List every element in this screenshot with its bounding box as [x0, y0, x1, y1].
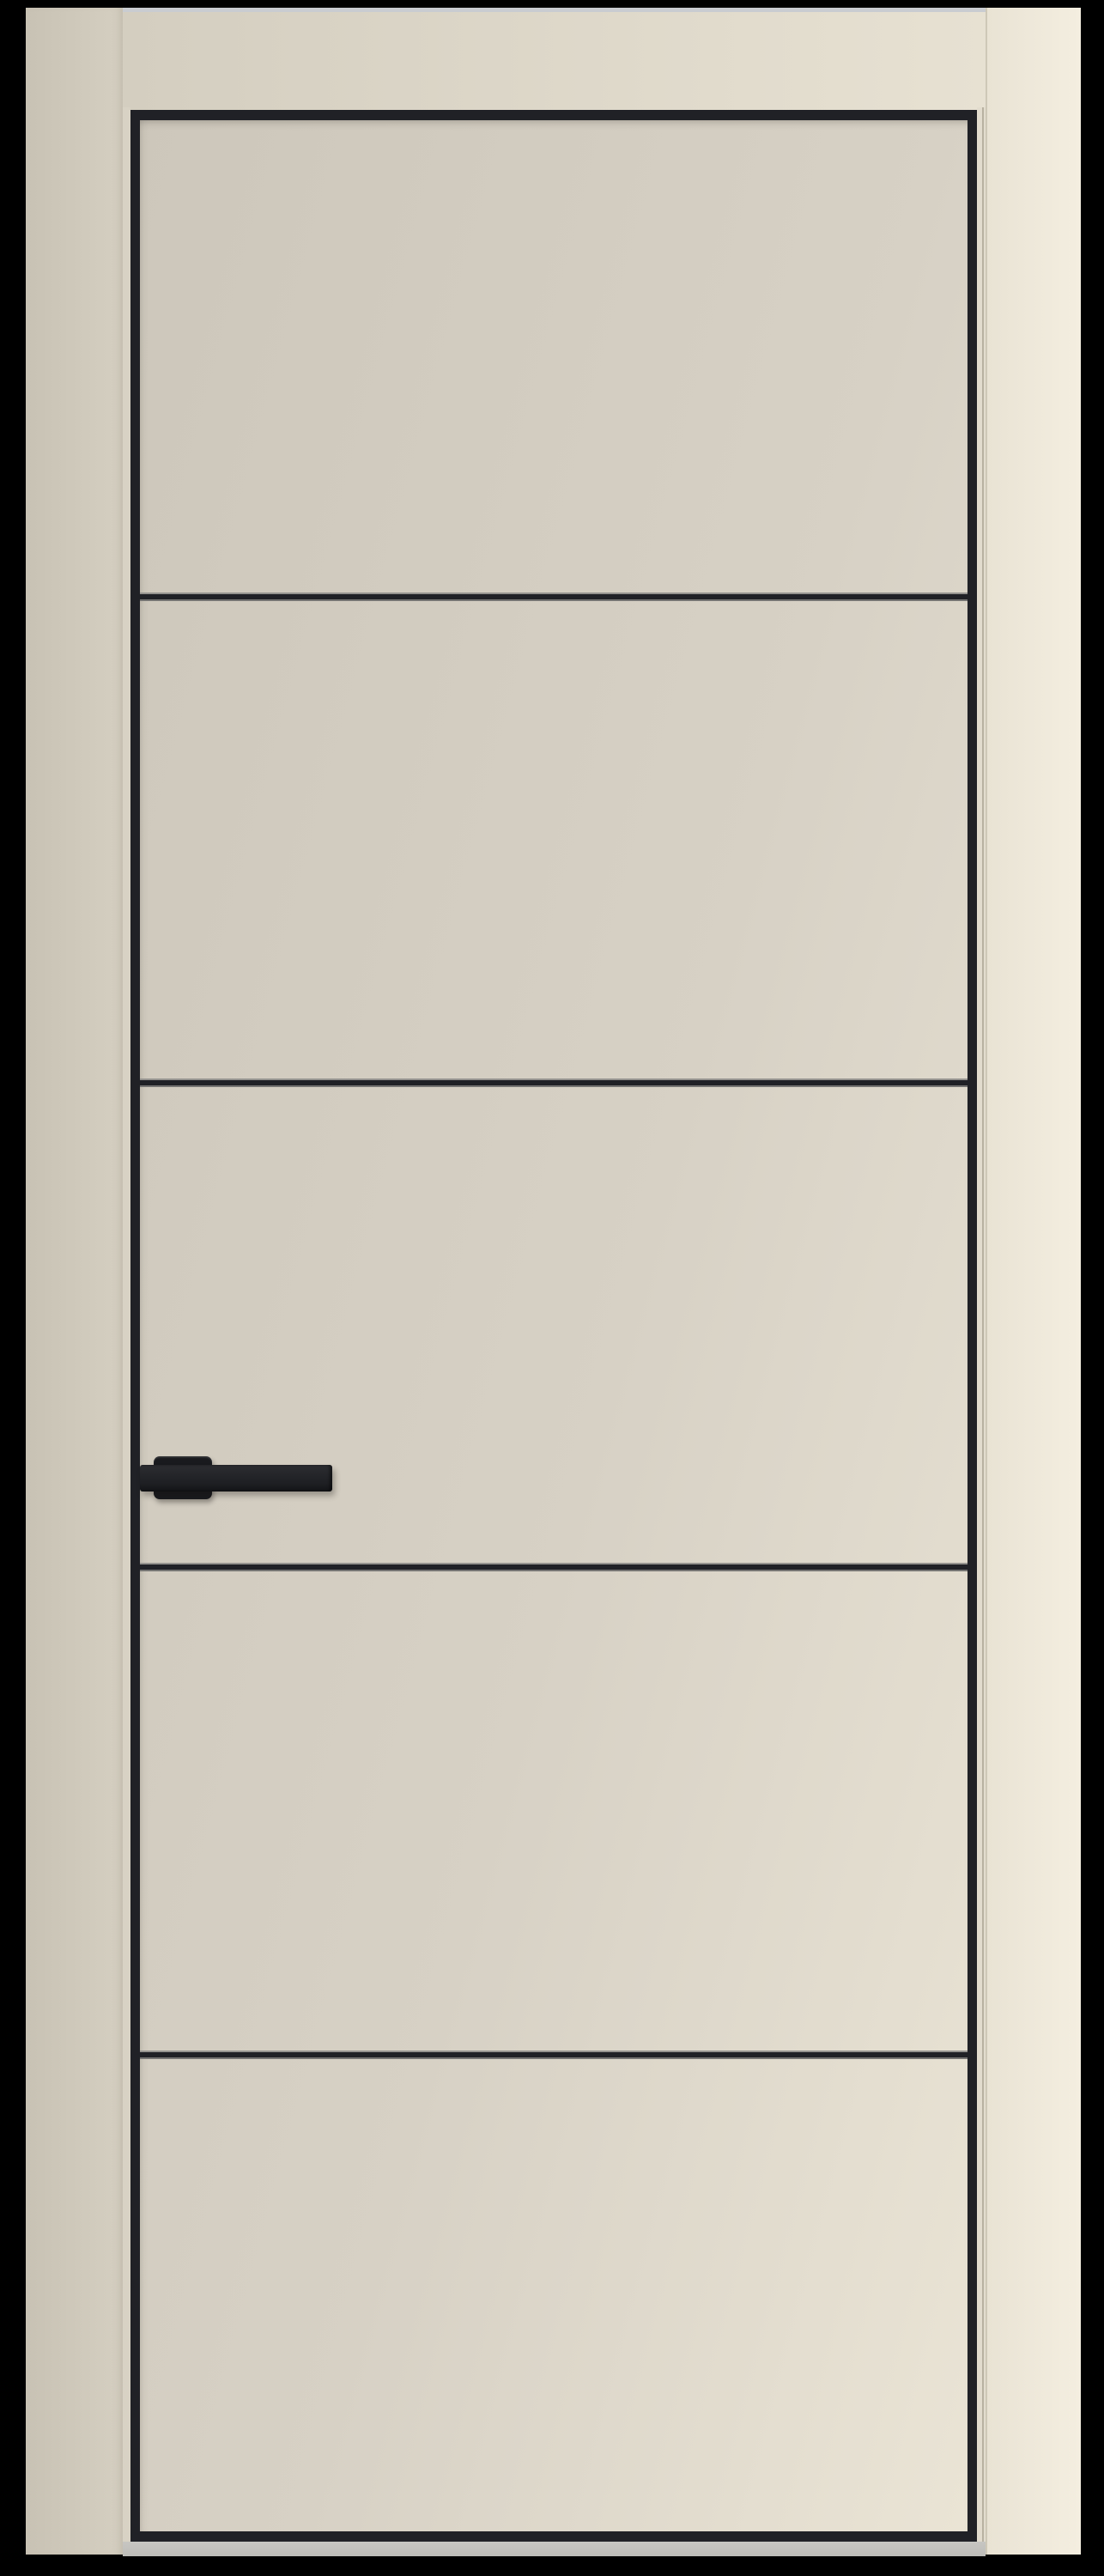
frame-inner-face-right [977, 107, 986, 2542]
panel-divider-line-1 [140, 592, 968, 601]
door-leaf [140, 120, 968, 2531]
panel-divider-line-2 [140, 1078, 968, 1087]
left-door-jamb [26, 8, 127, 2555]
panel-divider-line-4 [140, 2050, 968, 2059]
floor-strip [123, 2542, 986, 2556]
panel-divider-line-3 [140, 1563, 968, 1571]
frame-inner-face-left [123, 107, 130, 2542]
door-product-photo [0, 0, 1104, 2576]
right-door-jamb [986, 8, 1081, 2555]
top-frame-lintel [123, 8, 986, 112]
frame-top-gray-edge [123, 8, 986, 12]
door-handle-lever-icon [140, 1465, 332, 1492]
